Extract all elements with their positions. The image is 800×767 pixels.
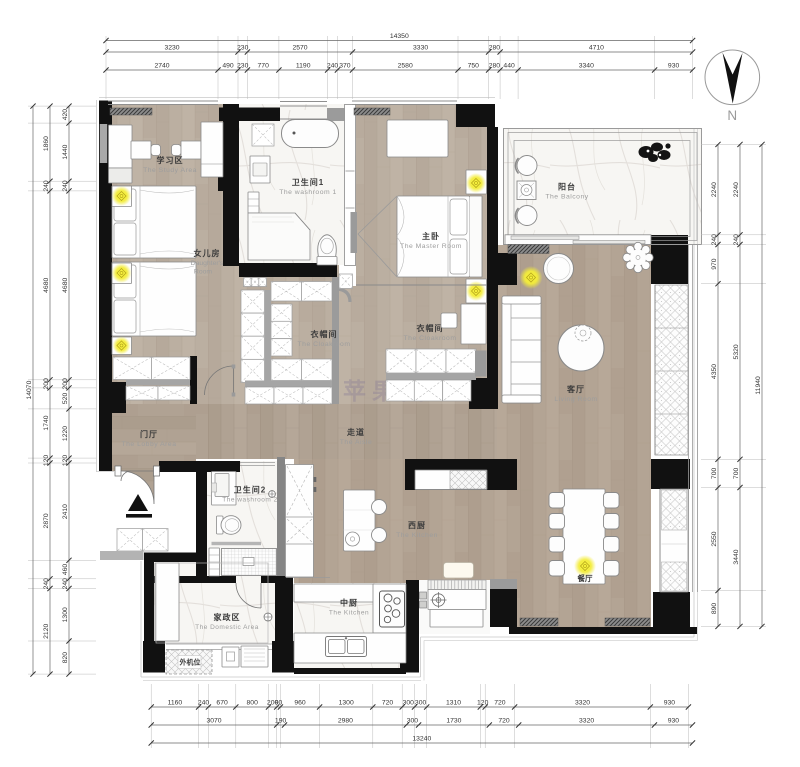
svg-text:3230: 3230 — [164, 45, 179, 52]
svg-text:280: 280 — [489, 63, 501, 70]
svg-text:3320: 3320 — [575, 700, 590, 707]
svg-text:14350: 14350 — [390, 33, 409, 40]
svg-text:420: 420 — [62, 109, 69, 121]
svg-text:西厨: 西厨 — [408, 520, 426, 530]
svg-text:720: 720 — [382, 700, 394, 707]
svg-text:家政区: 家政区 — [214, 612, 241, 622]
svg-text:客厅: 客厅 — [566, 384, 585, 394]
svg-text:3440: 3440 — [733, 549, 740, 564]
svg-text:90: 90 — [275, 700, 283, 707]
svg-text:1860: 1860 — [43, 136, 50, 151]
svg-text:The washroom 1: The washroom 1 — [279, 189, 337, 196]
svg-text:700: 700 — [733, 468, 740, 480]
svg-text:800: 800 — [247, 700, 259, 707]
svg-text:The Aisle: The Aisle — [340, 439, 372, 446]
svg-text:200: 200 — [43, 378, 50, 390]
svg-text:820: 820 — [62, 652, 69, 664]
svg-text:4710: 4710 — [589, 45, 604, 52]
svg-text:The Master Room: The Master Room — [400, 243, 462, 250]
svg-text:13240: 13240 — [412, 736, 431, 743]
svg-text:女儿房: 女儿房 — [194, 248, 221, 258]
svg-text:2240: 2240 — [733, 182, 740, 197]
svg-text:300: 300 — [415, 700, 427, 707]
svg-text:240: 240 — [62, 578, 69, 590]
svg-text:240: 240 — [43, 578, 50, 590]
svg-text:520: 520 — [62, 393, 69, 405]
svg-text:5320: 5320 — [733, 344, 740, 359]
svg-text:卫生间1: 卫生间1 — [292, 177, 324, 187]
svg-text:2740: 2740 — [154, 63, 169, 70]
svg-text:1190: 1190 — [296, 63, 311, 70]
svg-text:300: 300 — [407, 718, 419, 725]
svg-text:930: 930 — [668, 718, 680, 725]
svg-text:The Cloakroom: The Cloakroom — [404, 335, 457, 342]
svg-text:N: N — [727, 108, 737, 123]
svg-text:主卧: 主卧 — [422, 231, 440, 241]
svg-text:2410: 2410 — [62, 504, 69, 519]
svg-text:衣帽间: 衣帽间 — [417, 323, 444, 333]
svg-text:750: 750 — [468, 63, 480, 70]
svg-text:770: 770 — [258, 63, 270, 70]
svg-text:走道: 走道 — [346, 427, 365, 437]
svg-text:4680: 4680 — [62, 278, 69, 293]
svg-text:The washroom 2: The washroom 2 — [222, 497, 277, 504]
svg-text:餐厅: 餐厅 — [577, 573, 593, 583]
svg-text:11940: 11940 — [755, 376, 762, 395]
svg-text:3070: 3070 — [206, 718, 221, 725]
svg-text:The Cloakroom: The Cloakroom — [298, 341, 351, 348]
svg-text:2240: 2240 — [711, 182, 718, 197]
svg-text:120: 120 — [477, 700, 489, 707]
svg-text:240: 240 — [43, 180, 50, 192]
svg-text:卫生间2: 卫生间2 — [234, 485, 266, 495]
svg-text:The Lobby Area: The Lobby Area — [122, 441, 177, 448]
svg-text:The Kitchen: The Kitchen — [396, 532, 438, 539]
svg-text:930: 930 — [664, 700, 676, 707]
svg-text:230: 230 — [237, 63, 249, 70]
svg-text:2550: 2550 — [711, 531, 718, 546]
svg-text:门厅: 门厅 — [140, 429, 158, 439]
svg-text:1160: 1160 — [168, 700, 183, 707]
svg-text:2120: 2120 — [43, 624, 50, 639]
svg-text:460: 460 — [62, 564, 69, 576]
svg-text:720: 720 — [498, 718, 510, 725]
svg-text:4350: 4350 — [711, 364, 718, 379]
svg-text:3330: 3330 — [413, 45, 428, 52]
svg-text:120: 120 — [43, 455, 50, 467]
svg-text:120: 120 — [62, 455, 69, 467]
svg-text:外机位: 外机位 — [180, 658, 201, 667]
svg-text:720: 720 — [494, 700, 506, 707]
svg-text:The Domestic Area: The Domestic Area — [195, 624, 259, 631]
svg-text:3340: 3340 — [579, 63, 594, 70]
svg-text:Living Room: Living Room — [554, 396, 597, 403]
svg-text:2870: 2870 — [43, 513, 50, 528]
svg-text:240: 240 — [327, 63, 339, 70]
svg-text:2580: 2580 — [398, 63, 413, 70]
svg-text:学习区: 学习区 — [157, 155, 184, 165]
svg-text:300: 300 — [403, 700, 415, 707]
svg-text:Room: Room — [194, 269, 212, 276]
svg-text:490: 490 — [222, 63, 234, 70]
svg-text:衣帽间: 衣帽间 — [311, 329, 338, 339]
svg-text:280: 280 — [489, 45, 501, 52]
svg-text:Daughter's: Daughter's — [191, 260, 224, 267]
svg-text:The Balcony: The Balcony — [545, 194, 588, 201]
svg-text:440: 440 — [503, 63, 515, 70]
svg-text:240: 240 — [733, 234, 740, 246]
svg-text:2980: 2980 — [338, 718, 353, 725]
svg-text:1220: 1220 — [62, 426, 69, 441]
svg-text:中厨: 中厨 — [340, 598, 358, 608]
svg-text:1440: 1440 — [62, 144, 69, 159]
svg-text:2570: 2570 — [292, 45, 307, 52]
svg-text:240: 240 — [62, 180, 69, 192]
svg-text:370: 370 — [339, 63, 351, 70]
svg-text:1740: 1740 — [43, 415, 50, 430]
svg-text:930: 930 — [668, 63, 680, 70]
svg-text:240: 240 — [711, 234, 718, 246]
svg-text:4680: 4680 — [43, 278, 50, 293]
svg-text:1310: 1310 — [446, 700, 461, 707]
svg-text:230: 230 — [237, 45, 249, 52]
svg-text:200: 200 — [62, 378, 69, 390]
svg-text:190: 190 — [275, 718, 287, 725]
svg-text:阳台: 阳台 — [558, 182, 576, 192]
svg-text:960: 960 — [294, 700, 306, 707]
svg-text:670: 670 — [216, 700, 228, 707]
svg-text:14070: 14070 — [26, 380, 33, 399]
svg-text:3320: 3320 — [579, 718, 594, 725]
svg-text:240: 240 — [198, 700, 210, 707]
svg-text:The Study Area: The Study Area — [143, 167, 197, 174]
svg-text:The Kitchen: The Kitchen — [329, 610, 369, 617]
svg-text:890: 890 — [711, 603, 718, 615]
svg-text:1300: 1300 — [339, 700, 354, 707]
svg-text:1300: 1300 — [62, 607, 69, 622]
svg-text:700: 700 — [711, 468, 718, 480]
svg-text:970: 970 — [711, 258, 718, 270]
svg-text:1730: 1730 — [446, 718, 461, 725]
